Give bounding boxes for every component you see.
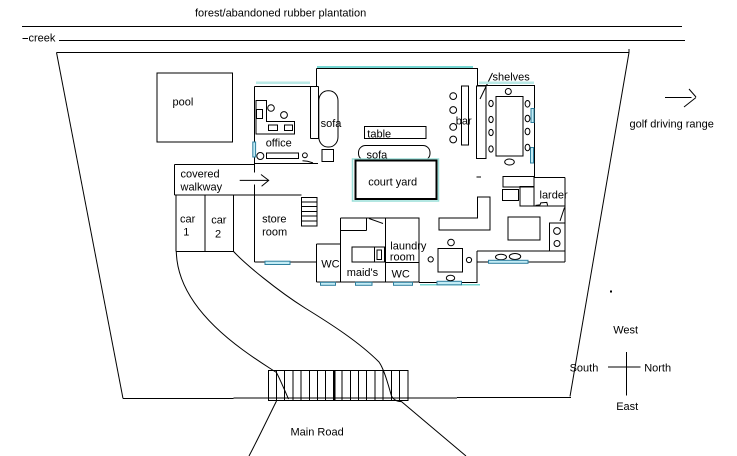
svg-text:North: North — [644, 363, 671, 375]
svg-text:WC: WC — [392, 269, 410, 281]
svg-text:court yard: court yard — [368, 176, 417, 188]
svg-text:East: East — [616, 401, 638, 413]
svg-text:shelves: shelves — [493, 72, 531, 84]
svg-text:WC: WC — [321, 259, 339, 271]
svg-text:table: table — [367, 128, 391, 140]
svg-text:West: West — [613, 325, 638, 337]
svg-text:maid's: maid's — [347, 267, 379, 279]
svg-text:car: car — [211, 214, 227, 226]
svg-text:covered: covered — [181, 168, 220, 180]
svg-text:forest/abandoned rubber planta: forest/abandoned rubber plantation — [195, 8, 366, 20]
svg-text:laundry: laundry — [390, 240, 427, 252]
svg-text:room: room — [390, 252, 415, 264]
svg-text:larder: larder — [540, 190, 568, 202]
svg-text:car: car — [180, 213, 196, 225]
svg-text:creek: creek — [29, 33, 56, 45]
svg-text:South: South — [570, 363, 599, 375]
svg-text:Main Road: Main Road — [291, 427, 344, 439]
svg-text:bar: bar — [456, 116, 472, 128]
svg-text:2: 2 — [215, 229, 221, 241]
svg-text:sofa: sofa — [367, 149, 389, 161]
svg-text:pool: pool — [173, 97, 194, 109]
svg-text:golf driving range: golf driving range — [630, 118, 714, 130]
svg-text:sofa: sofa — [321, 118, 343, 130]
svg-text:room: room — [262, 227, 287, 239]
svg-text:1: 1 — [183, 227, 189, 239]
svg-text:walkway: walkway — [180, 182, 223, 194]
svg-text:store: store — [262, 214, 286, 226]
svg-text:office: office — [266, 138, 292, 150]
